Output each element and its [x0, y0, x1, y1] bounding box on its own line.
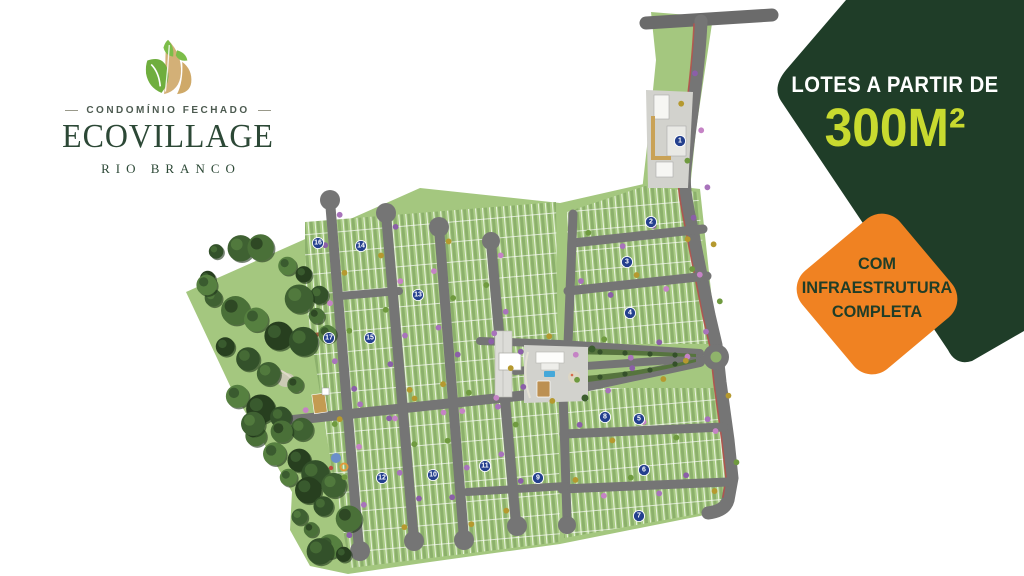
badge-line-3: COMPLETA: [795, 300, 958, 324]
badge-line-1: COM: [795, 252, 958, 276]
tagline-text: CONDOMÍNIO FECHADO: [86, 105, 249, 116]
logo: CONDOMÍNIO FECHADO ECOVILLAGE RIO BRANCO: [40, 28, 296, 177]
infra-badge-text: COM INFRAESTRUTURA COMPLETA: [795, 252, 958, 324]
offer-headline: LOTES A PARTIR DE: [789, 72, 1001, 98]
logo-name: ECOVILLAGE: [48, 118, 289, 156]
offer-lot-size: 300M²: [789, 101, 1001, 155]
tagline-rule-left: [65, 110, 78, 111]
tagline-rule-right: [258, 110, 271, 111]
leaf-house-icon: [135, 36, 201, 98]
logo-tagline: CONDOMÍNIO FECHADO: [40, 105, 296, 116]
promo-page: 1234567891011121314151617 LOTES A PARTIR…: [0, 0, 1024, 576]
badge-line-2: INFRAESTRUTURA: [795, 276, 958, 300]
offer-text: LOTES A PARTIR DE 300M²: [780, 72, 1010, 155]
logo-location: RIO BRANCO: [40, 161, 296, 177]
